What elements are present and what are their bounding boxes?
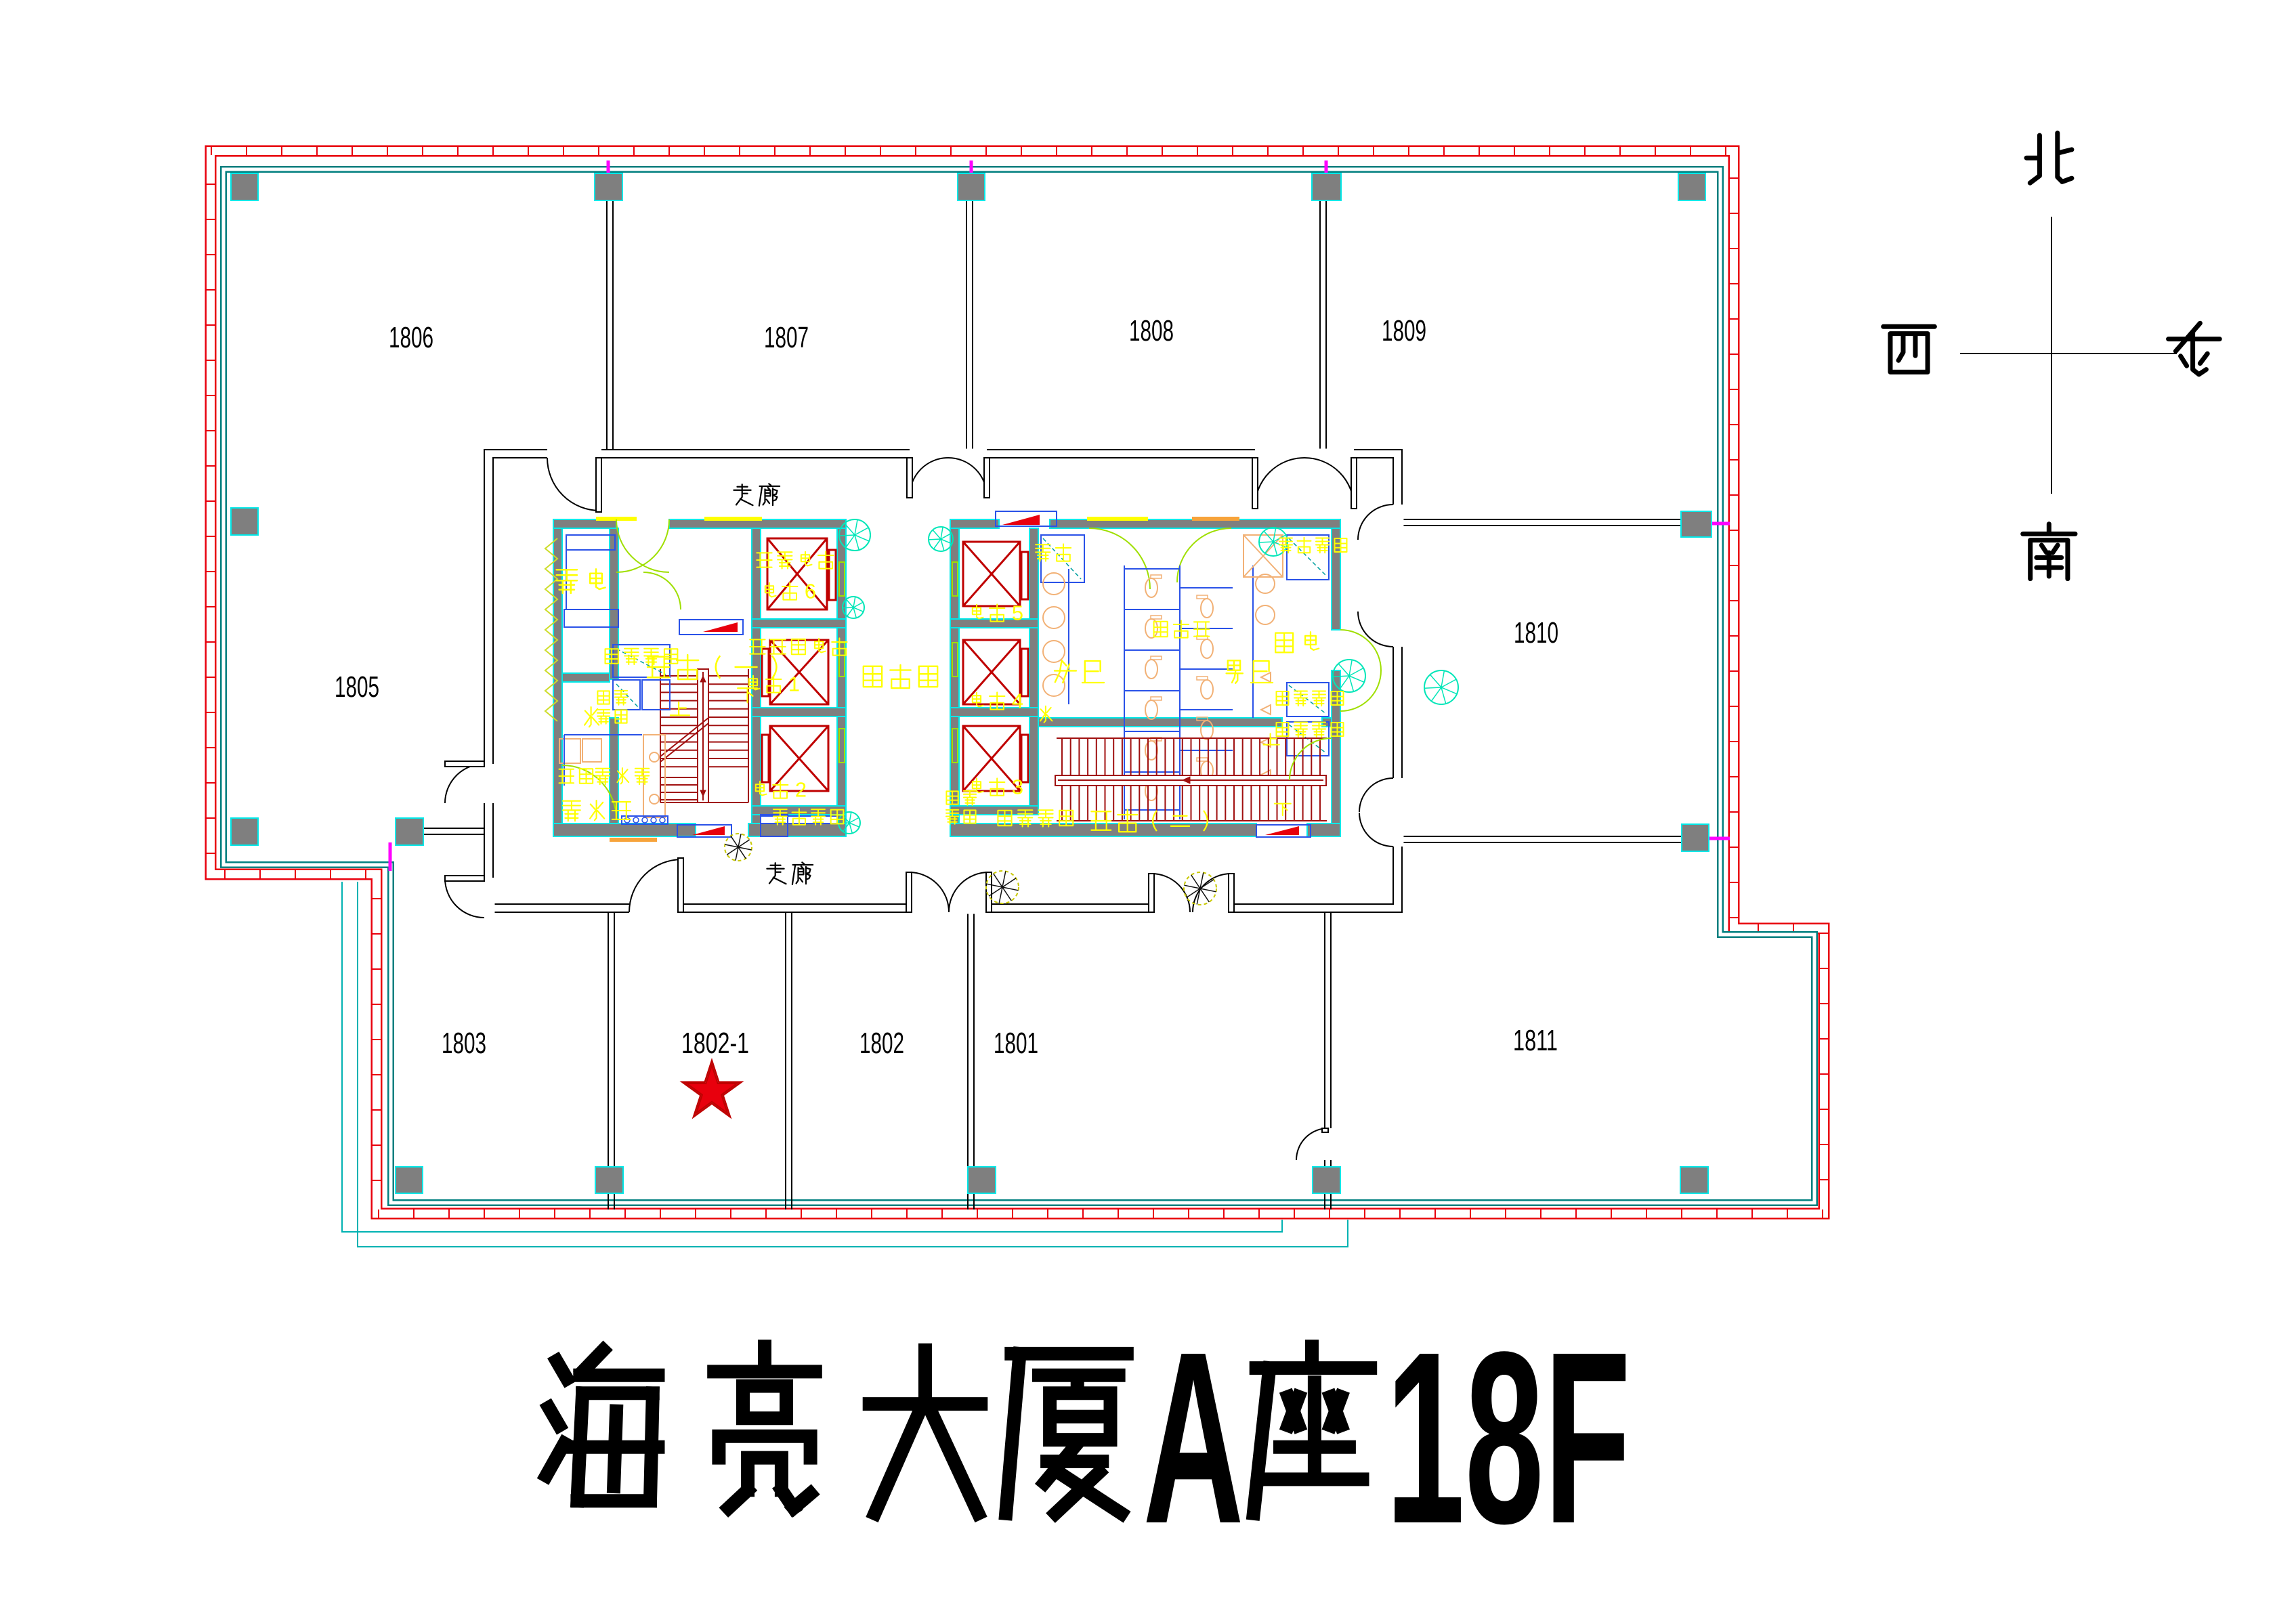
svg-text:1809: 1809 — [1382, 314, 1426, 347]
svg-text:1802-1: 1802-1 — [681, 1027, 749, 1060]
svg-text:6: 6 — [805, 580, 816, 603]
svg-text:1803: 1803 — [442, 1027, 486, 1060]
svg-text:4: 4 — [1012, 689, 1023, 713]
svg-text:1810: 1810 — [1514, 616, 1558, 649]
svg-text:2: 2 — [795, 778, 807, 802]
svg-text:1802: 1802 — [859, 1027, 904, 1060]
svg-text:A: A — [1143, 1301, 1243, 1575]
svg-text:1807: 1807 — [764, 321, 809, 354]
svg-text:1806: 1806 — [389, 321, 433, 354]
svg-text:1: 1 — [788, 672, 800, 696]
svg-text:1808: 1808 — [1129, 314, 1174, 347]
svg-text:1805: 1805 — [335, 670, 379, 704]
svg-text:3: 3 — [1012, 775, 1023, 799]
svg-text:5: 5 — [1012, 601, 1023, 625]
svg-text:18F: 18F — [1386, 1300, 1631, 1575]
svg-text:1801: 1801 — [994, 1027, 1038, 1060]
svg-text:1811: 1811 — [1513, 1024, 1558, 1057]
